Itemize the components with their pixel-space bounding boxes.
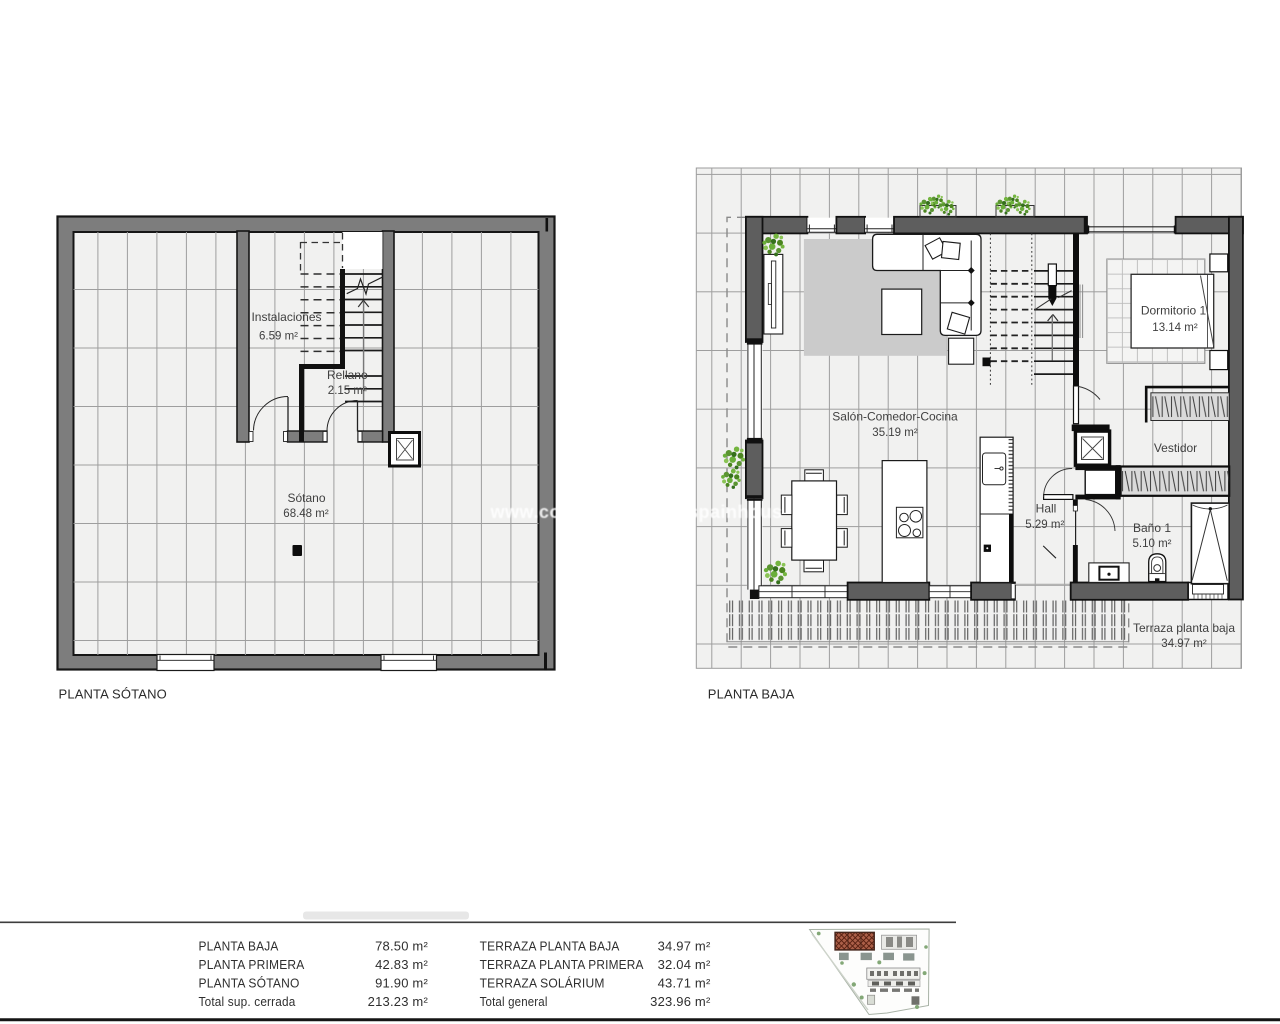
svg-text:Baño 1: Baño 1 [1133, 521, 1171, 535]
svg-text:5.10 m²: 5.10 m² [1133, 538, 1172, 550]
svg-text:43.71 m²: 43.71 m² [658, 976, 711, 991]
svg-text:Salón-Comedor-Cocina: Salón-Comedor-Cocina [832, 410, 958, 424]
svg-text:78.50 m²: 78.50 m² [375, 939, 428, 954]
svg-text:2.15 m²: 2.15 m² [328, 385, 367, 397]
svg-text:TERRAZA SOLÁRIUM: TERRAZA SOLÁRIUM [480, 976, 605, 991]
svg-text:spainhous: spainhous [688, 502, 783, 522]
svg-text:91.90 m²: 91.90 m² [375, 976, 428, 991]
svg-text:68.48 m²: 68.48 m² [283, 508, 329, 520]
svg-text:34.97 m²: 34.97 m² [1161, 638, 1207, 650]
svg-text:TERRAZA PLANTA BAJA: TERRAZA PLANTA BAJA [480, 939, 620, 954]
svg-text:www.co: www.co [490, 502, 561, 522]
svg-text:5.29 m²: 5.29 m² [1025, 519, 1064, 531]
svg-text:Total sup. cerrada: Total sup. cerrada [199, 994, 297, 1009]
svg-text:Instalaciones: Instalaciones [251, 310, 321, 324]
svg-text:35.19 m²: 35.19 m² [872, 427, 918, 439]
svg-text:Rellano: Rellano [327, 368, 368, 382]
svg-text:323.96 m²: 323.96 m² [650, 994, 711, 1009]
svg-text:213.23 m²: 213.23 m² [368, 994, 429, 1009]
svg-text:PLANTA BAJA: PLANTA BAJA [708, 687, 795, 702]
svg-text:32.04 m²: 32.04 m² [658, 957, 711, 972]
svg-text:13.14 m²: 13.14 m² [1152, 322, 1198, 334]
svg-text:Hall: Hall [1036, 502, 1057, 516]
svg-text:Total general: Total general [480, 994, 548, 1009]
svg-text:42.83 m²: 42.83 m² [375, 957, 428, 972]
svg-text:PLANTA SÓTANO: PLANTA SÓTANO [59, 687, 167, 702]
svg-text:Dormitorio 1: Dormitorio 1 [1141, 304, 1207, 318]
svg-text:6.59 m²: 6.59 m² [259, 331, 298, 343]
svg-text:PLANTA PRIMERA: PLANTA PRIMERA [199, 957, 305, 972]
svg-text:34.97 m²: 34.97 m² [658, 939, 711, 954]
svg-text:PLANTA BAJA: PLANTA BAJA [199, 939, 279, 954]
svg-text:Vestidor: Vestidor [1154, 441, 1197, 455]
svg-text:Terraza planta baja: Terraza planta baja [1133, 621, 1235, 635]
svg-text:PLANTA SÓTANO: PLANTA SÓTANO [199, 976, 300, 991]
svg-text:TERRAZA PLANTA PRIMERA: TERRAZA PLANTA PRIMERA [480, 957, 644, 972]
svg-text:Sótano: Sótano [287, 491, 325, 505]
